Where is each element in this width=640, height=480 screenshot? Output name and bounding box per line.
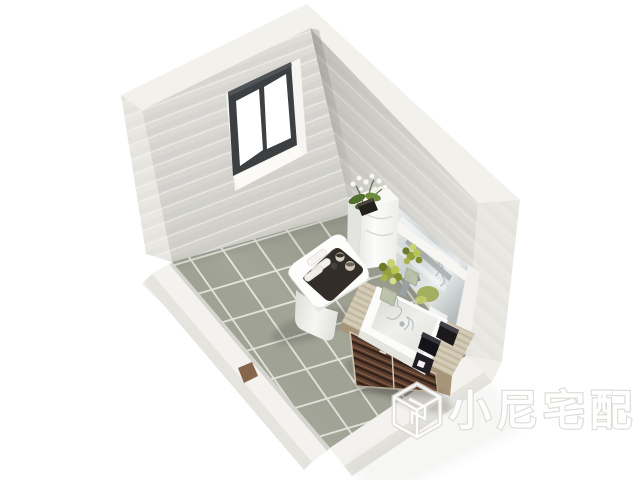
watermark-text: 小尼宅配 [449, 386, 637, 435]
bathroom-render-image: 小尼宅配 [0, 0, 640, 480]
bathroom-3d-scene: 小尼宅配 [0, 0, 640, 480]
drain [399, 321, 404, 326]
